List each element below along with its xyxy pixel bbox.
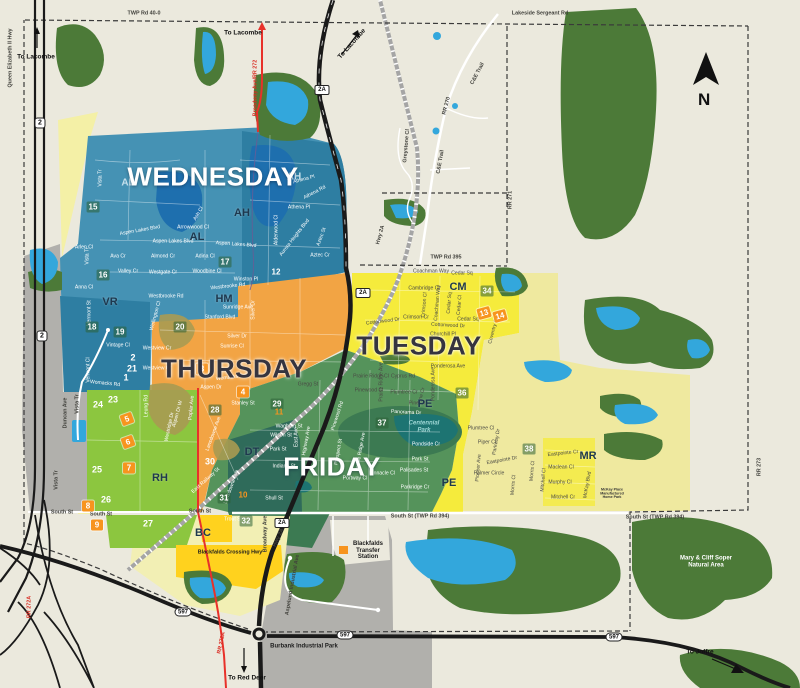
collection-schedule-map: Vista TrVista TrAnna ClArlen ClAva CrVal… xyxy=(0,0,800,688)
zone-wednesday-vr xyxy=(60,296,150,392)
north-label: N xyxy=(698,90,710,110)
transfer-station-icon xyxy=(339,546,348,554)
map-canvas xyxy=(0,0,800,688)
zone-yellow-block xyxy=(200,515,232,542)
zone-mr-block xyxy=(543,438,595,506)
roundabout xyxy=(254,629,264,639)
